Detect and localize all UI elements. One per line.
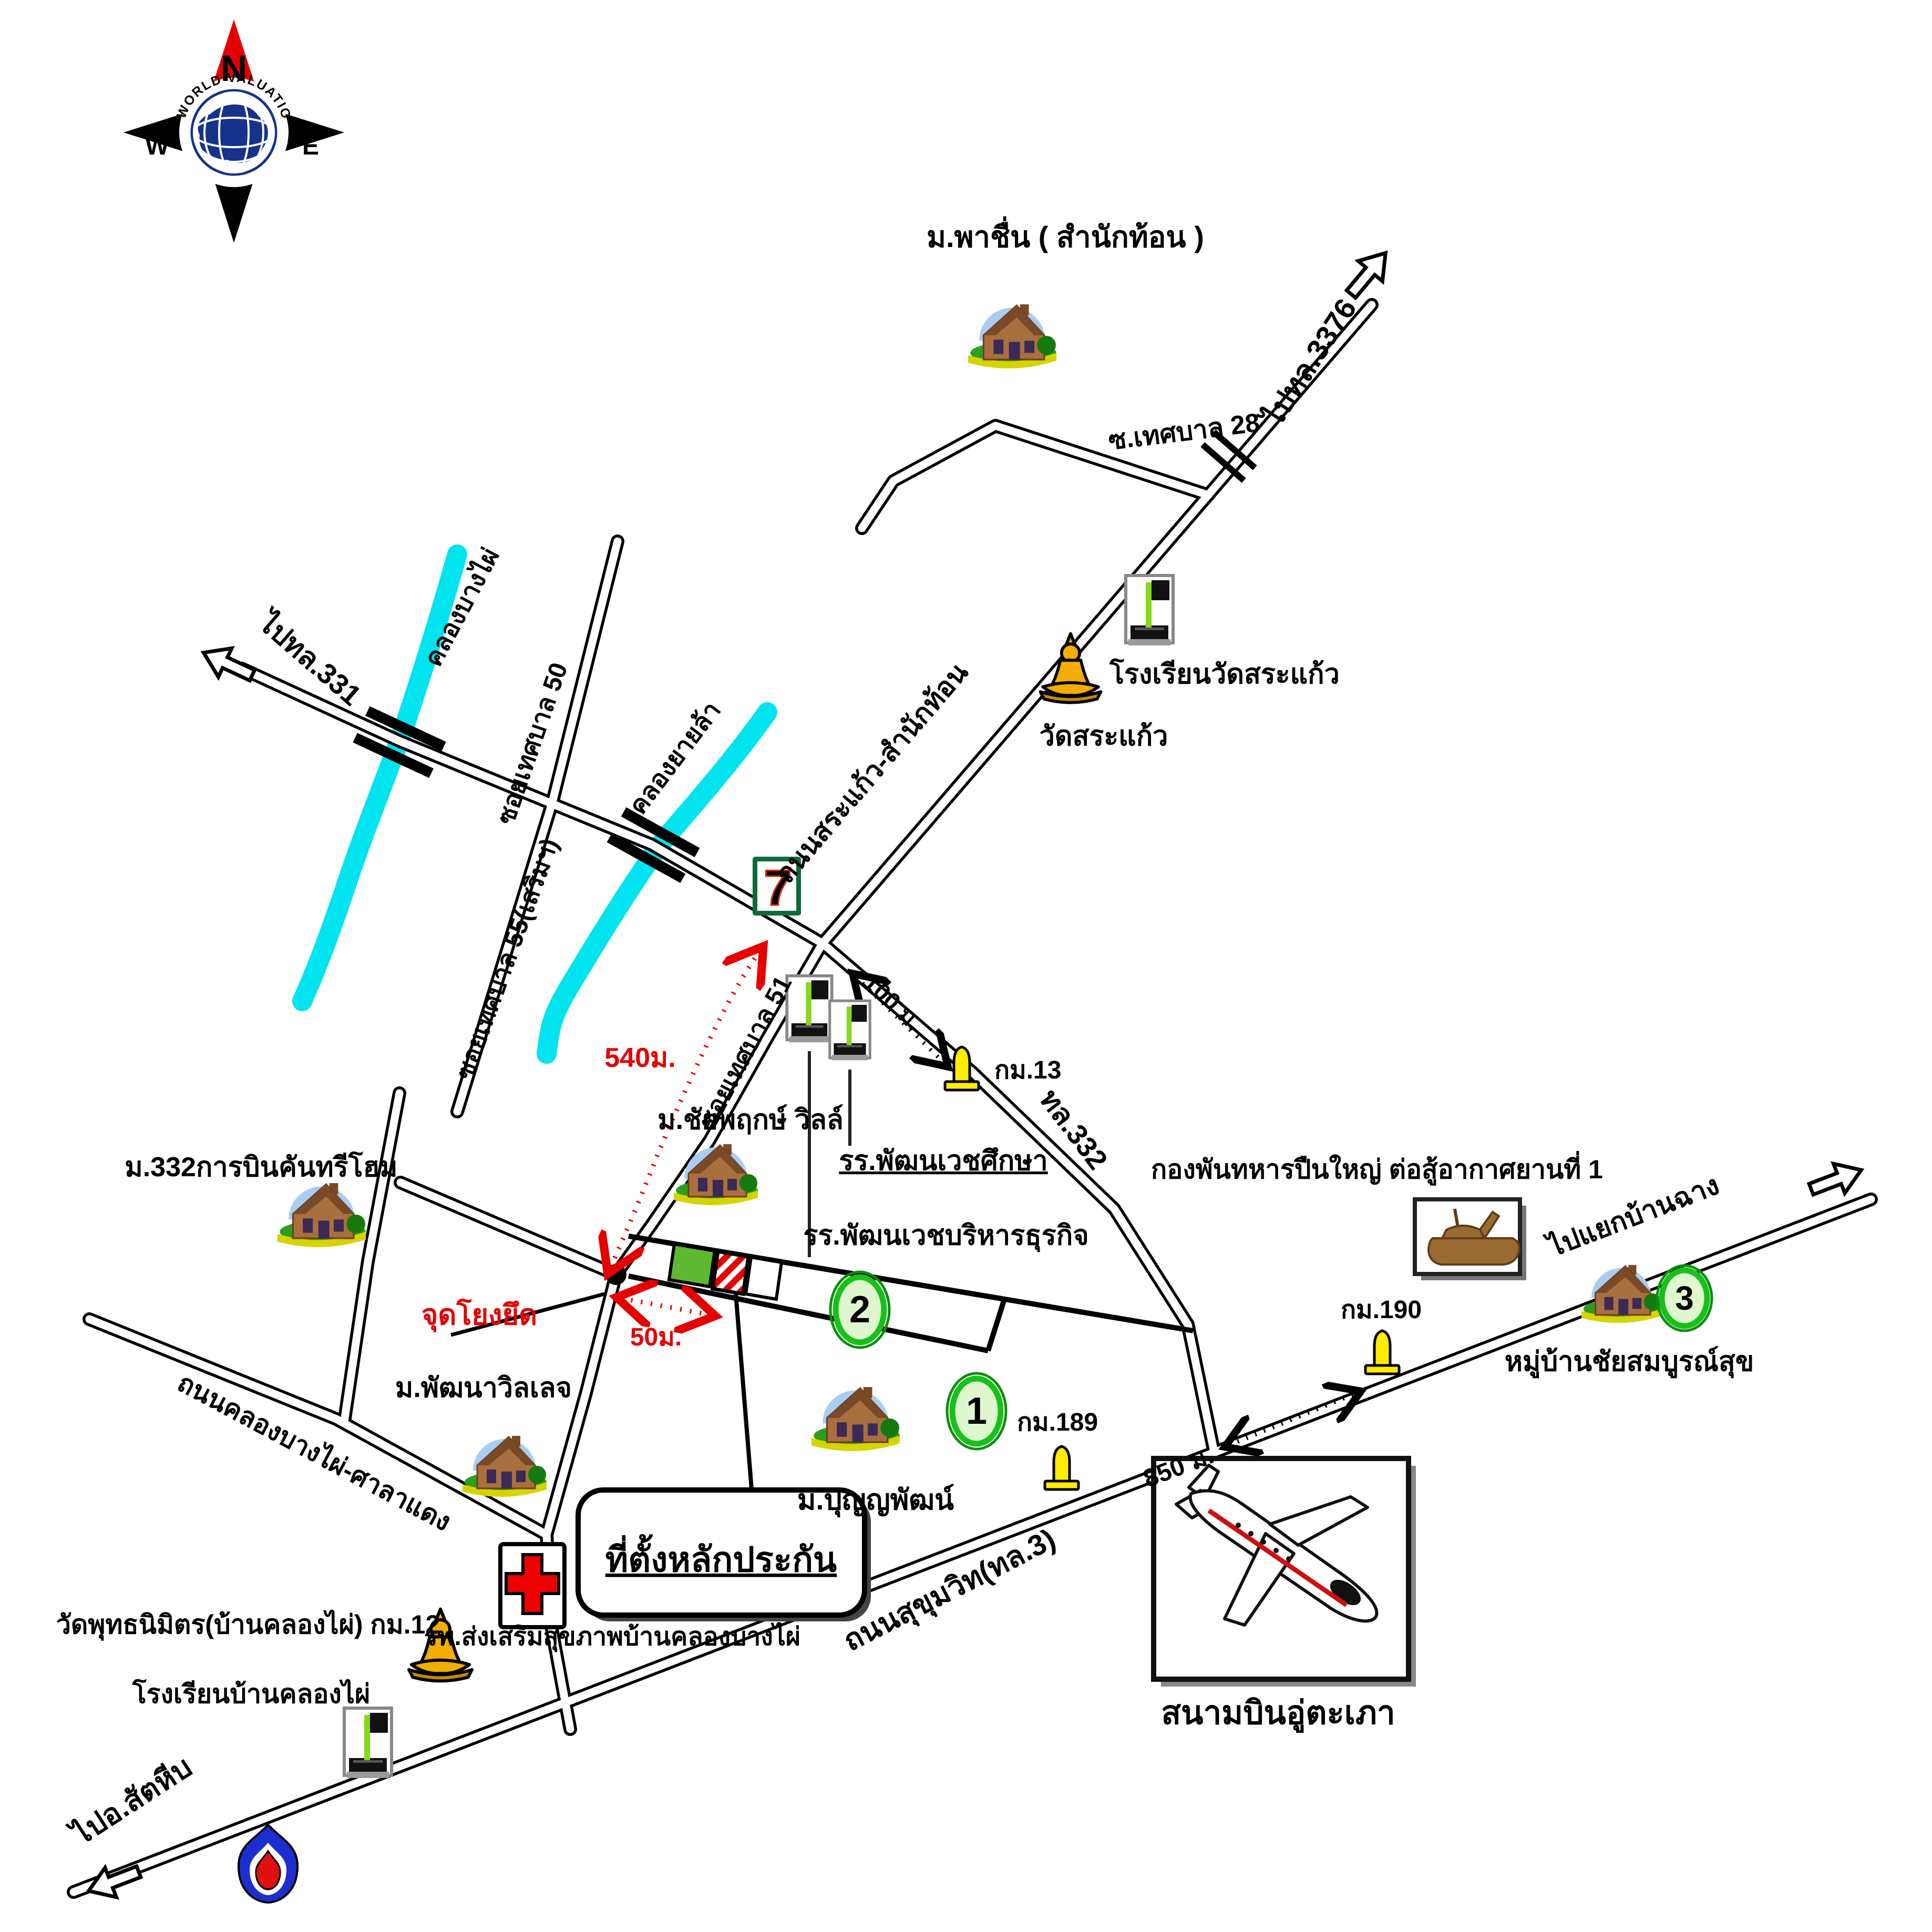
school-icon-ban-khlong-phai [344,1708,392,1778]
label-km189: กม.189 [1017,1409,1098,1436]
label-km13: กม.13 [994,1056,1061,1084]
label-pattanawet-biz: รร.พัฒนเวชบริหารธุรกิจ [803,1220,1088,1252]
compass-w-label: W [145,132,169,160]
parcel-white [746,1257,782,1299]
label-pattanawet-suksa: รร.พัฒนเวชศึกษา [839,1146,1047,1176]
hospital-icon [500,1544,564,1627]
globe-icon [192,90,276,174]
label-hospital: รพ.ส่งเสริมสุขภาพบ้านคลองบางไผ่ [424,1621,800,1652]
label-wat-sakaeo: วัดสระแก้ว [1040,721,1168,752]
label-utapao: สนามบินอู่ตะเภา [1161,1695,1395,1733]
label-punyapat: ม.ปุญญพัฒน์ [797,1484,954,1518]
badge-3: 3 [1657,1266,1712,1331]
parcel-subject-hatched [713,1251,748,1294]
label-wat-buddhanimit: วัดพุทธนิมิตร(บ้านคลองไผ่) กม.12 [56,1609,440,1641]
subject-site-label: ที่ตั้งหลักประกัน [605,1534,837,1579]
school-icon-wat-sakaeo [1126,576,1173,645]
label-anchor-point: จุดโยงยึด [422,1298,537,1333]
label-pachuen: ม.พาชื่น ( สำนักท้อน ) [927,216,1204,253]
svg-text:2: 2 [849,1289,870,1331]
svg-text:3: 3 [1675,1279,1694,1317]
label-pattana-village: ม.พัฒนาวิลเลจ [395,1373,572,1403]
map-background [0,0,1932,1932]
label-m332-country-home: ม.332การบินคันทรีโฮม [125,1150,397,1183]
badge-2: 2 [830,1272,889,1348]
label-school-wat-sakaeo: โรงเรียนวัดสระแก้ว [1109,657,1340,690]
label-540m: 540ม. [604,1043,675,1073]
label-school-ban-khlong-phai: โรงเรียนบ้านคลองไผ่ [132,1678,371,1709]
school-icon-pattanawet-suksa [830,1001,870,1060]
badge-1: 1 [947,1373,1006,1449]
compass-e-label: E [302,132,319,160]
label-chaiyapruek: ม.ชัยพฤกษ์ วิลล์ [657,1104,843,1135]
label-50m: 50ม. [630,1323,682,1351]
compass-s-label: S [225,199,242,227]
compass-n-label: N [221,48,248,89]
label-chaisomboonsuk: หมู่บ้านชัยสมบูรณ์สุข [1505,1346,1754,1379]
valuation-map: 7 [0,0,1932,1932]
tank-icon [1415,1199,1526,1280]
label-km190: กม.190 [1341,1296,1422,1324]
anchor-dot [605,1264,626,1285]
parcel-green [669,1244,715,1287]
label-artillery: กองพันทหารปืนใหญ่ ต่อสู้อากาศยานที่ 1 [1151,1151,1603,1186]
svg-text:1: 1 [966,1390,987,1432]
airplane-icon [1154,1458,1416,1687]
